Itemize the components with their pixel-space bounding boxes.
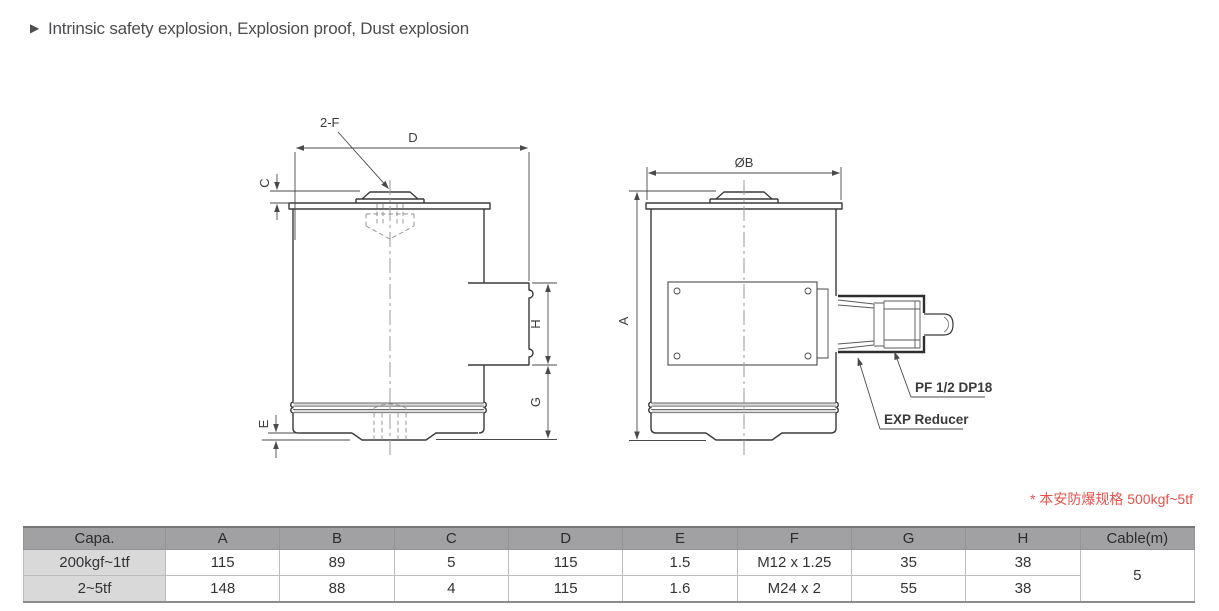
column-header-b: B — [280, 527, 394, 550]
cable-gland — [838, 296, 953, 352]
value-cell: M12 x 1.25 — [737, 550, 851, 576]
table-header-row: Capa. A B C D E F G H Cable(m) — [24, 527, 1195, 550]
thread-callout-label: 2-F — [320, 115, 340, 130]
dim-label-d: D — [408, 130, 417, 145]
exp-reducer-label: EXP Reducer — [884, 412, 969, 427]
column-header-e: E — [623, 527, 737, 550]
groove-band — [294, 410, 484, 413]
value-cell: 35 — [851, 550, 965, 576]
capacity-cell: 2~5tf — [24, 576, 166, 603]
plate-screw-hole — [674, 353, 680, 359]
groove-band — [652, 403, 836, 406]
dim-label-a: A — [616, 316, 631, 325]
column-header-a: A — [166, 527, 280, 550]
plate-screw-hole — [805, 288, 811, 294]
terminal-plate — [668, 282, 828, 365]
value-cell: 148 — [166, 576, 280, 603]
column-header-cable: Cable(m) — [1080, 527, 1194, 550]
front-view-dimensions — [629, 167, 985, 441]
table-row: 2~5tf 148 88 4 115 1.6 M24 x 2 55 38 — [24, 576, 1195, 603]
page: ▶Intrinsic safety explosion, Explosion p… — [0, 0, 1219, 611]
intrinsic-safety-note: * 本安防爆规格 500kgf~5tf — [1030, 489, 1193, 509]
value-cell: 38 — [966, 576, 1080, 603]
column-header-g: G — [851, 527, 965, 550]
dim-label-c: C — [257, 178, 272, 187]
table-row: 200kgf~1tf 115 89 5 115 1.5 M12 x 1.25 3… — [24, 550, 1195, 576]
value-cell: 115 — [508, 550, 622, 576]
value-cell: 38 — [966, 550, 1080, 576]
value-cell: 115 — [166, 550, 280, 576]
dim-label-g: G — [528, 397, 543, 407]
dim-label-diameter-b: ØB — [735, 155, 754, 170]
value-cell: 4 — [394, 576, 508, 603]
column-header-c: C — [394, 527, 508, 550]
capacity-cell: 200kgf~1tf — [24, 550, 166, 576]
gland-thread-label: PF 1/2 DP18 — [915, 380, 993, 395]
gland-housing-outline — [838, 296, 924, 352]
plate-screw-hole — [805, 353, 811, 359]
value-cell: 1.5 — [623, 550, 737, 576]
dim-label-e: E — [256, 419, 271, 428]
column-header-capa: Capa. — [24, 527, 166, 550]
column-header-d: D — [508, 527, 622, 550]
value-cell: 5 — [394, 550, 508, 576]
dim-label-h: H — [528, 319, 543, 328]
value-cell: 88 — [280, 576, 394, 603]
value-cell: 55 — [851, 576, 965, 603]
dimension-table: Capa. A B C D E F G H Cable(m) 200kgf~1t… — [23, 526, 1195, 603]
column-header-h: H — [966, 527, 1080, 550]
value-cell: 1.6 — [623, 576, 737, 603]
column-header-f: F — [737, 527, 851, 550]
technical-drawing: D 2-F C E H G — [0, 0, 1219, 611]
cable-merged-cell: 5 — [1080, 550, 1194, 603]
plate-screw-hole — [674, 288, 680, 294]
groove-band — [294, 403, 484, 406]
value-cell: 115 — [508, 576, 622, 603]
value-cell: M24 x 2 — [737, 576, 851, 603]
value-cell: 89 — [280, 550, 394, 576]
